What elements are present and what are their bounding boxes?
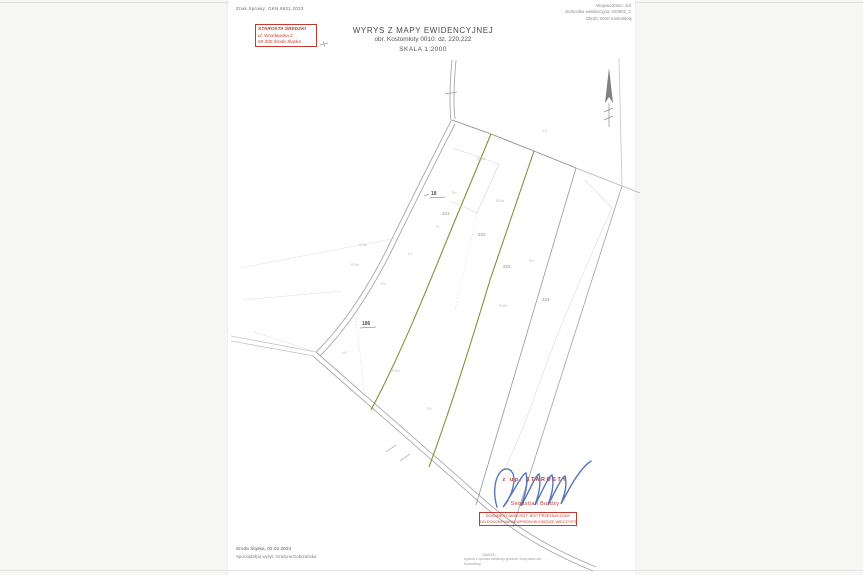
signature-ink-stroke	[495, 461, 591, 507]
handwritten-signature	[0, 0, 863, 575]
scanned-document-page: Znak Sprawy: GKN.6621.2023 Województwo: …	[0, 0, 863, 575]
